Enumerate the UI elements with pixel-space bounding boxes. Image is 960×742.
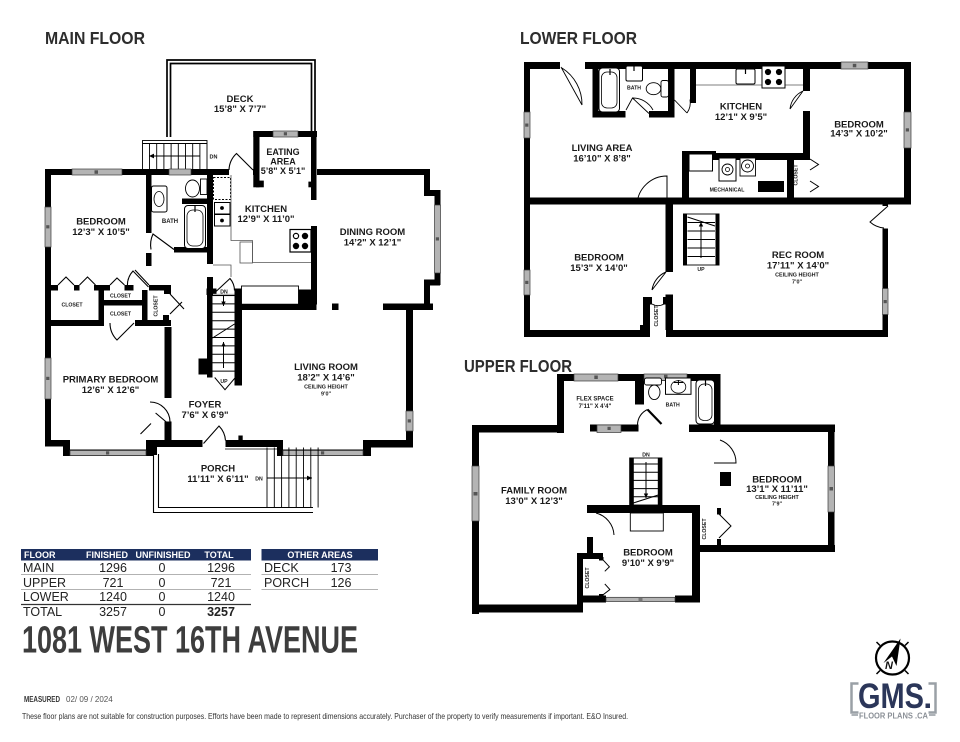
svg-text:MAIN: MAIN — [23, 561, 54, 575]
svg-text:CLOSET: CLOSET — [702, 518, 708, 540]
svg-text:CLOSET: CLOSET — [154, 295, 160, 317]
svg-text:7’0": 7’0" — [792, 280, 802, 286]
svg-text:N: N — [885, 660, 894, 672]
svg-text:9’0": 9’0" — [321, 392, 331, 398]
svg-text:MEASURED: MEASURED — [24, 695, 60, 704]
svg-text:126: 126 — [331, 576, 352, 590]
svg-text:721: 721 — [211, 576, 232, 590]
svg-text:1081 WEST 16TH AVENUE: 1081 WEST 16TH AVENUE — [22, 620, 358, 662]
svg-text:UNFINISHED: UNFINISHED — [135, 550, 191, 560]
svg-text:14’3" X 10’2": 14’3" X 10’2" — [830, 129, 888, 140]
svg-text:MAIN FLOOR: MAIN FLOOR — [45, 28, 145, 48]
svg-text:PRIMARY BEDROOM: PRIMARY BEDROOM — [63, 375, 159, 386]
svg-text:UPPER FLOOR: UPPER FLOOR — [464, 356, 572, 376]
svg-text:14’2" X 12’1": 14’2" X 12’1" — [344, 238, 402, 249]
svg-text:BATH: BATH — [666, 403, 680, 409]
svg-text:CLOSET: CLOSET — [110, 294, 132, 300]
svg-text:1296: 1296 — [207, 561, 235, 575]
svg-text:12’9" X 11’0": 12’9" X 11’0" — [237, 214, 294, 225]
svg-text:REC ROOM: REC ROOM — [772, 250, 824, 261]
svg-text:15’8" X 7’7": 15’8" X 7’7" — [214, 104, 266, 115]
svg-text:BEDROOM: BEDROOM — [623, 548, 673, 559]
svg-text:LIVING AREA: LIVING AREA — [572, 143, 633, 154]
svg-text:CLOSET: CLOSET — [794, 164, 800, 186]
svg-text:MECHANICAL: MECHANICAL — [710, 188, 746, 194]
svg-text:1240: 1240 — [207, 590, 235, 604]
svg-text:9’10" X 9’9": 9’10" X 9’9" — [622, 558, 674, 569]
svg-text:17’11" X 14’0": 17’11" X 14’0" — [767, 261, 829, 272]
svg-text:LOWER FLOOR: LOWER FLOOR — [520, 28, 637, 48]
svg-text:FLOOR: FLOOR — [24, 550, 56, 560]
svg-text:DINING ROOM: DINING ROOM — [340, 227, 406, 238]
svg-text:DN: DN — [220, 290, 228, 296]
svg-text:15’3" X 14’0": 15’3" X 14’0" — [570, 263, 628, 274]
svg-text:EATING: EATING — [266, 147, 299, 157]
svg-text:CLOSET: CLOSET — [654, 305, 660, 327]
svg-text:UP: UP — [220, 379, 228, 385]
svg-text:7’9": 7’9" — [772, 502, 782, 508]
svg-text:TOTAL: TOTAL — [23, 605, 62, 619]
svg-text:CEILING HEIGHT: CEILING HEIGHT — [755, 495, 799, 501]
svg-text:CEILING HEIGHT: CEILING HEIGHT — [775, 273, 819, 279]
svg-text:1296: 1296 — [99, 561, 127, 575]
svg-text:PORCH: PORCH — [264, 576, 309, 590]
svg-text:0: 0 — [159, 590, 166, 604]
svg-text:11’11" X 6’11": 11’11" X 6’11" — [187, 474, 248, 485]
svg-text:CLOSET: CLOSET — [61, 303, 83, 309]
svg-text:0: 0 — [159, 576, 166, 590]
svg-text:13’1" X 11’11": 13’1" X 11’11" — [746, 484, 808, 495]
svg-text:OTHER AREAS: OTHER AREAS — [287, 550, 352, 560]
svg-text:02/ 09 / 2024: 02/ 09 / 2024 — [66, 695, 113, 704]
svg-text:LOWER: LOWER — [23, 590, 69, 604]
svg-text:18’2" X 14’6": 18’2" X 14’6" — [297, 373, 355, 384]
svg-text:5’8" X 5’1": 5’8" X 5’1" — [261, 166, 306, 176]
svg-text:BATH: BATH — [162, 219, 178, 225]
svg-text:LIVING ROOM: LIVING ROOM — [294, 362, 358, 373]
svg-text:FOYER: FOYER — [189, 400, 222, 411]
svg-text:0: 0 — [159, 605, 166, 619]
svg-text:FLOOR PLANS .CA: FLOOR PLANS .CA — [859, 712, 928, 721]
svg-text:DN: DN — [210, 155, 218, 161]
svg-text:13’0" X 12’3": 13’0" X 12’3" — [505, 496, 563, 507]
svg-text:GMS: GMS — [858, 677, 924, 716]
svg-text:12’3" X 10’5": 12’3" X 10’5" — [72, 227, 130, 238]
svg-text:3257: 3257 — [207, 605, 235, 619]
svg-text:173: 173 — [331, 561, 352, 575]
svg-text:FAMILY ROOM: FAMILY ROOM — [501, 486, 567, 497]
svg-text:FLEX SPACE: FLEX SPACE — [576, 397, 613, 403]
svg-text:1240: 1240 — [99, 590, 127, 604]
svg-text:3257: 3257 — [99, 605, 127, 619]
svg-text:DECK: DECK — [264, 561, 299, 575]
svg-text:These floor plans are not suit: These floor plans are not suitable for c… — [22, 712, 628, 721]
svg-text:UP: UP — [697, 267, 705, 273]
svg-text:BATH: BATH — [627, 86, 641, 92]
svg-text:16’10" X 8’8": 16’10" X 8’8" — [573, 154, 631, 165]
svg-text:721: 721 — [103, 576, 124, 590]
svg-text:DN: DN — [255, 477, 263, 483]
svg-text:TOTAL: TOTAL — [204, 550, 234, 560]
svg-text:7’11" X 4’4": 7’11" X 4’4" — [579, 404, 612, 410]
svg-text:CEILING HEIGHT: CEILING HEIGHT — [304, 385, 348, 391]
svg-text:BEDROOM: BEDROOM — [574, 253, 624, 264]
svg-text:0: 0 — [159, 561, 166, 575]
svg-text:KITCHEN: KITCHEN — [720, 102, 762, 113]
svg-text:CLOSET: CLOSET — [110, 312, 132, 318]
svg-text:PORCH: PORCH — [201, 464, 235, 475]
svg-text:BEDROOM: BEDROOM — [76, 217, 126, 228]
svg-text:FINISHED: FINISHED — [86, 550, 129, 560]
svg-text:DN: DN — [642, 453, 650, 459]
svg-text:UPPER: UPPER — [23, 576, 66, 590]
svg-text:7’6" X 6’9": 7’6" X 6’9" — [181, 410, 228, 421]
svg-text:AREA: AREA — [270, 157, 296, 167]
svg-text:CLOSET: CLOSET — [585, 567, 591, 589]
svg-text:12’1" X 9’5": 12’1" X 9’5" — [715, 112, 767, 123]
svg-text:12’6" X 12’6": 12’6" X 12’6" — [82, 385, 140, 396]
